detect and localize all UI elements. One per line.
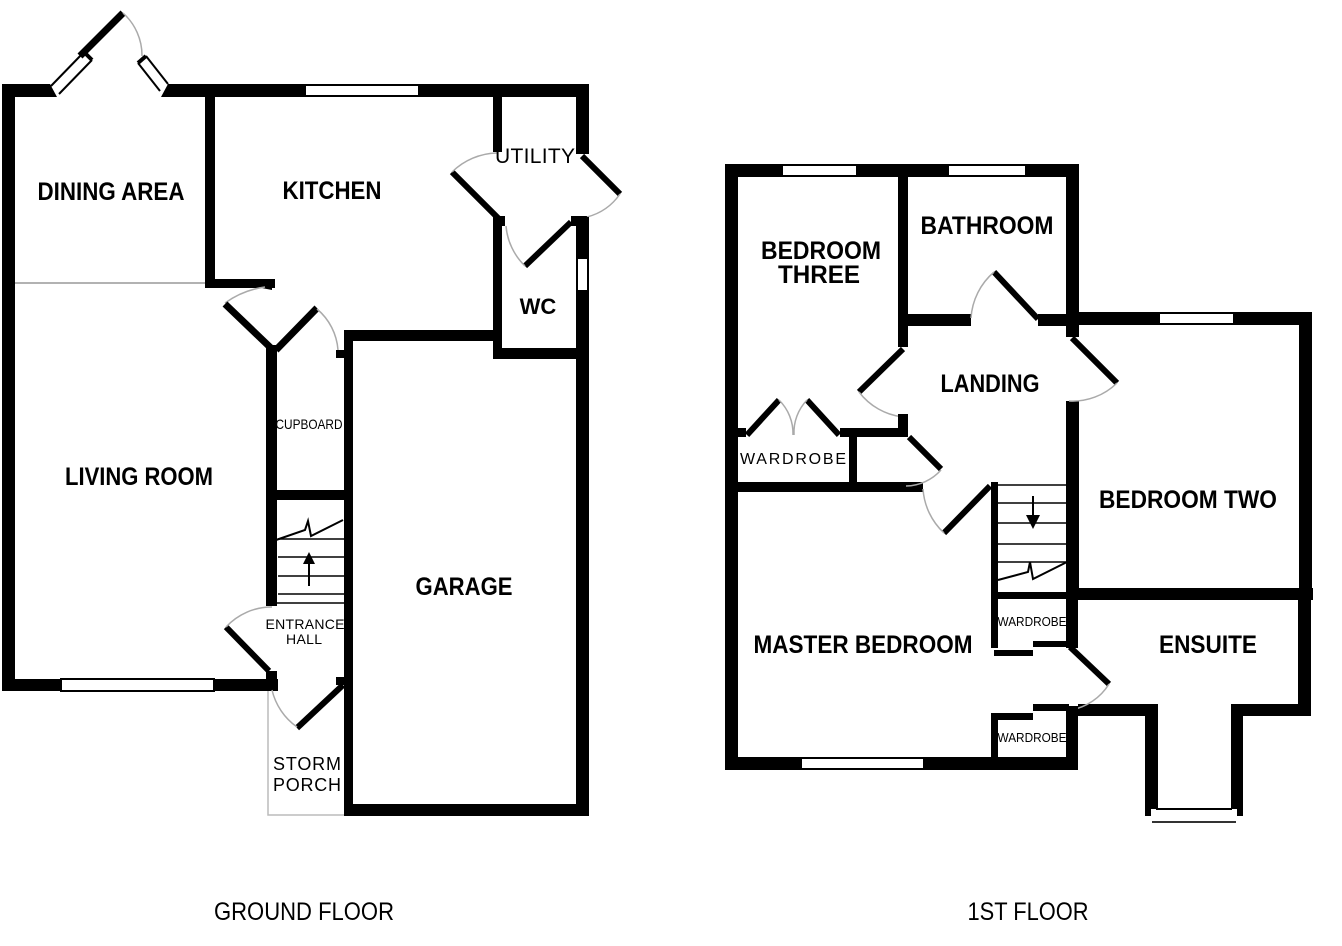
svg-text:UTILITY: UTILITY [495,145,575,168]
svg-text:LANDING: LANDING [941,370,1040,398]
svg-text:WC: WC [520,294,557,319]
svg-text:WARDROBE: WARDROBE [740,451,846,468]
svg-text:WARDROBE: WARDROBE [998,730,1067,745]
svg-text:GROUND FLOOR: GROUND FLOOR [214,898,394,926]
svg-text:MASTER BEDROOM: MASTER BEDROOM [754,631,973,659]
svg-text:ENTRANCE: ENTRANCE [266,616,345,632]
svg-text:HALL: HALL [286,631,322,647]
svg-text:THREE: THREE [778,261,860,289]
svg-text:ENSUITE: ENSUITE [1159,631,1257,659]
svg-text:CUPBOARD: CUPBOARD [276,416,343,432]
svg-text:PORCH: PORCH [273,775,341,795]
svg-text:BEDROOM TWO: BEDROOM TWO [1099,486,1277,514]
svg-text:DINING AREA: DINING AREA [38,178,185,206]
svg-text:WARDROBE: WARDROBE [998,614,1067,629]
svg-text:1ST FLOOR: 1ST FLOOR [968,898,1089,926]
svg-text:LIVING ROOM: LIVING ROOM [65,463,213,491]
svg-text:KITCHEN: KITCHEN [283,177,382,205]
svg-text:GARAGE: GARAGE [416,573,513,601]
svg-text:STORM: STORM [273,754,341,774]
svg-text:BATHROOM: BATHROOM [921,212,1054,240]
